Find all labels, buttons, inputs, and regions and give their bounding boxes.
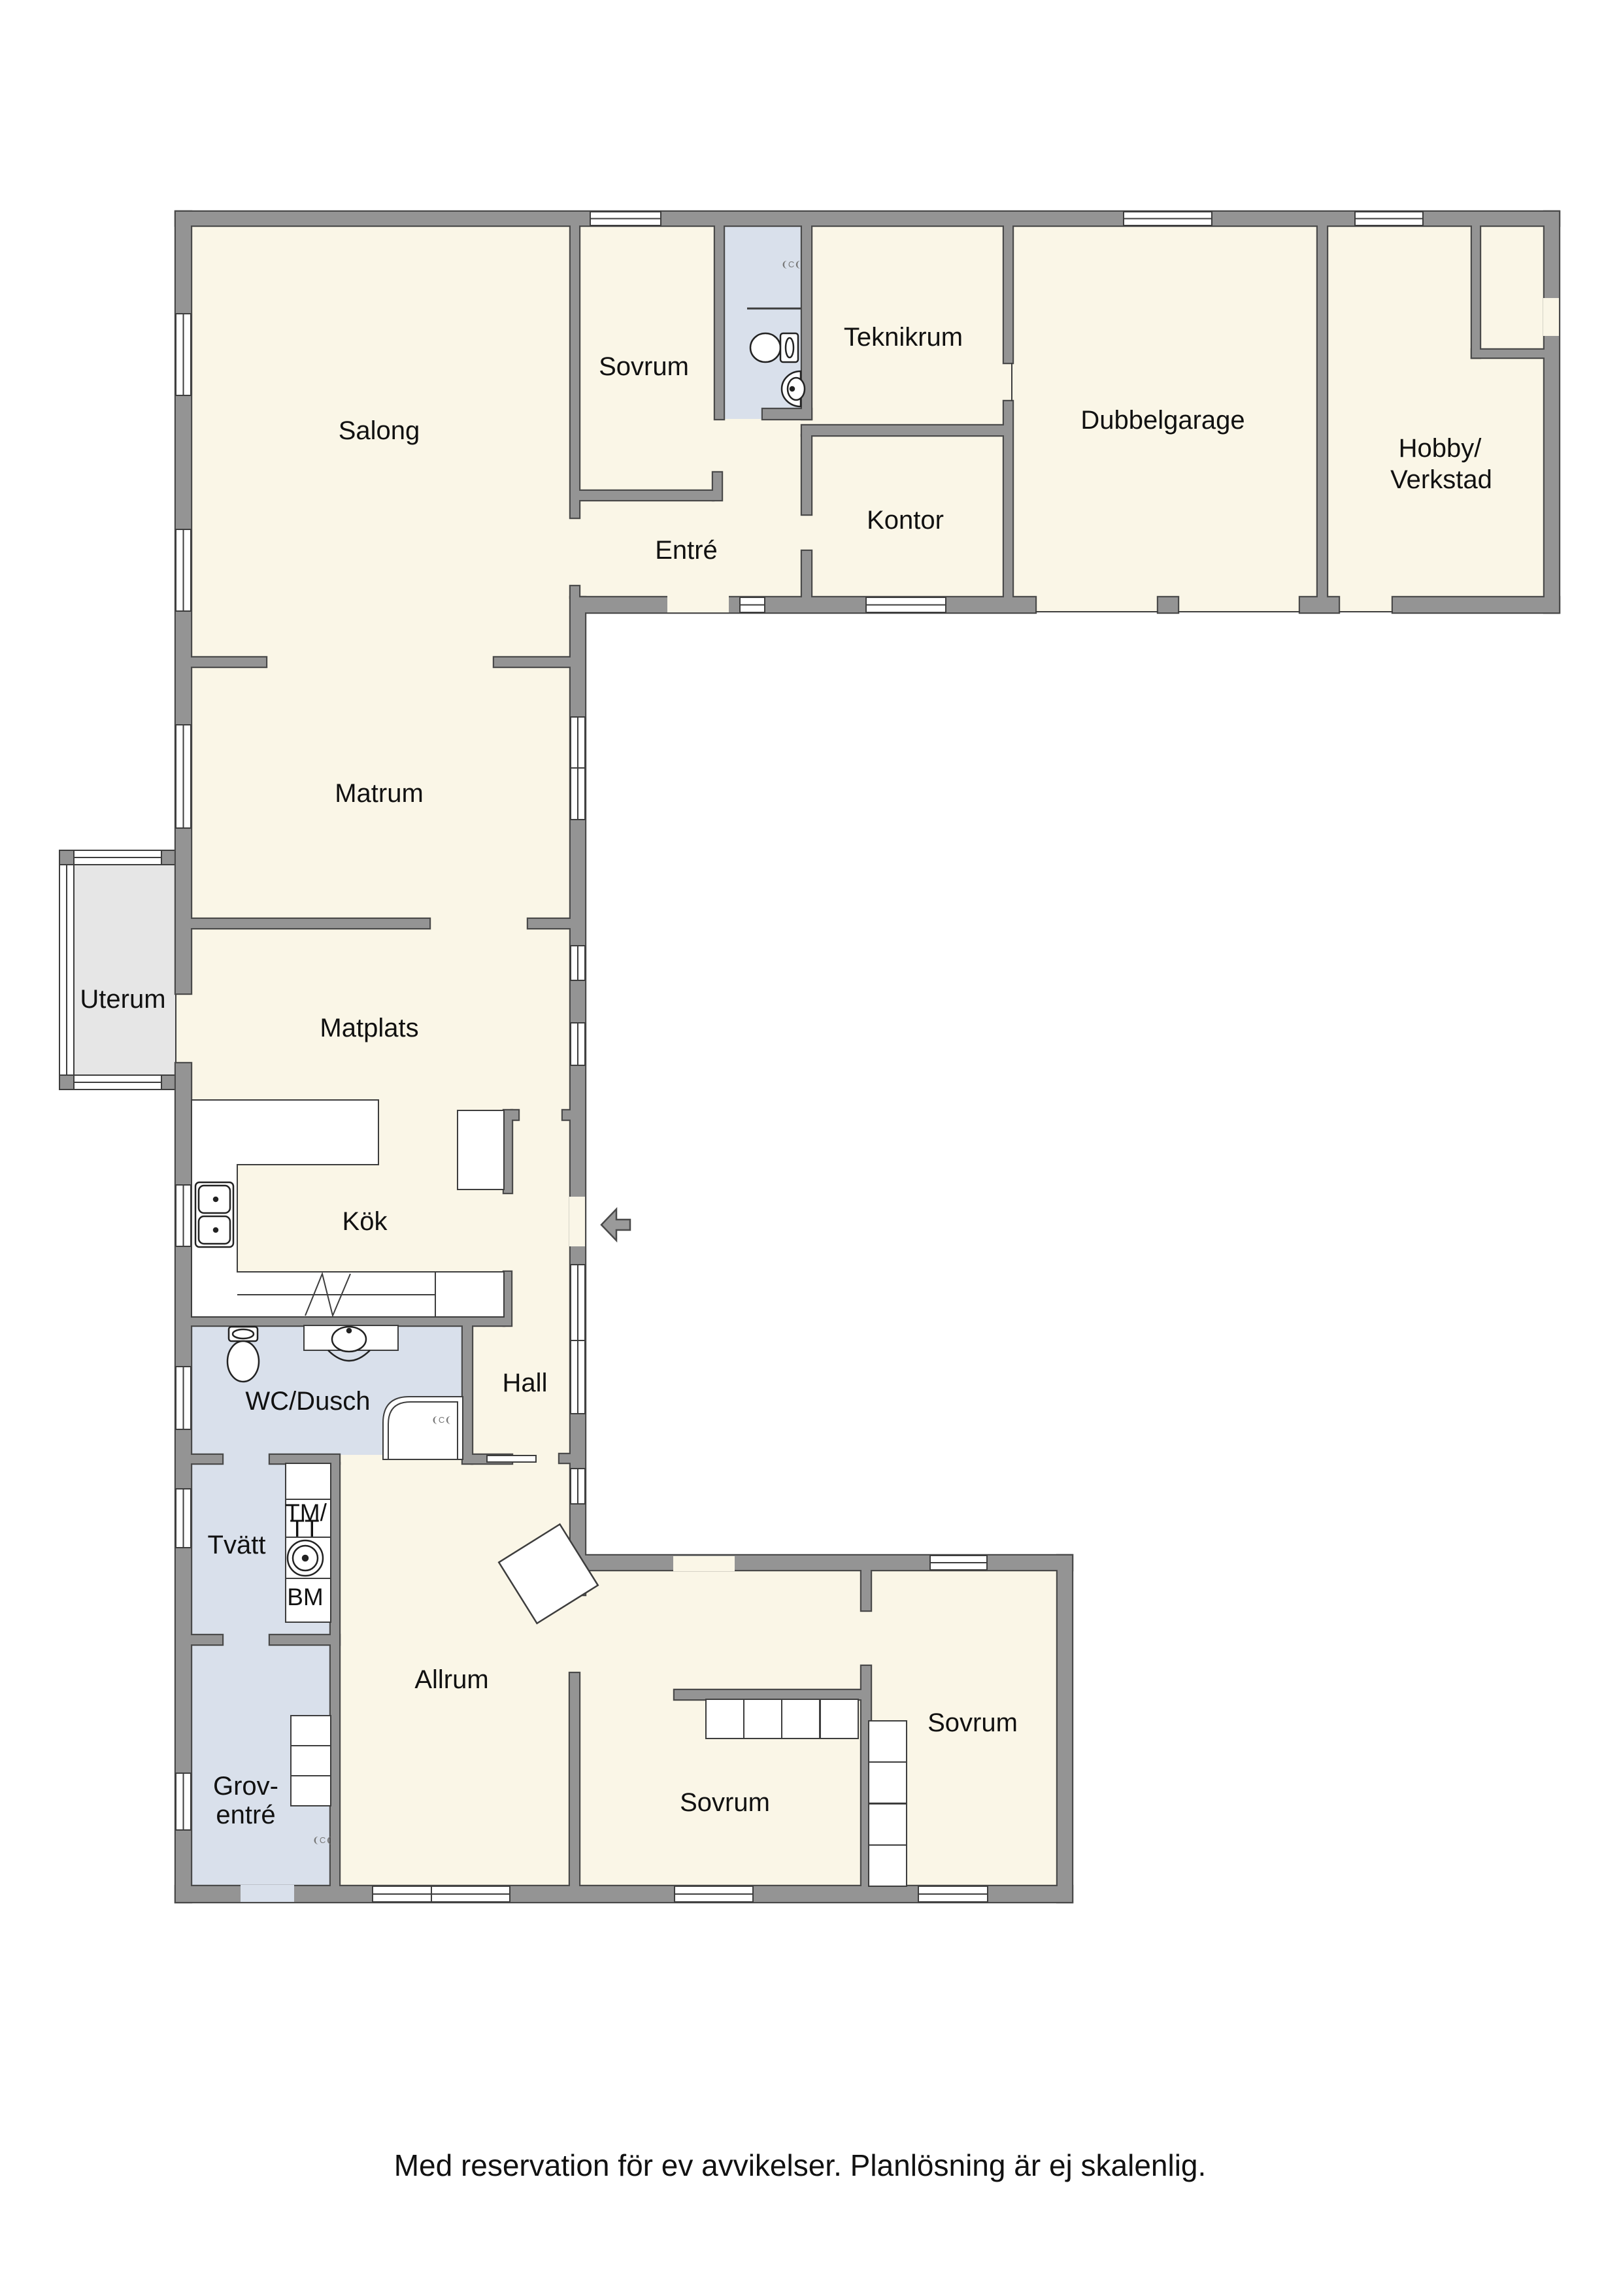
svg-text:Matplats: Matplats [320,1014,418,1042]
svg-text:Hobby/: Hobby/ [1399,434,1482,463]
svg-text:Grov-: Grov- [213,1772,278,1801]
svg-text:Sovrum: Sovrum [680,1788,770,1817]
svg-text:BM: BM [287,1584,324,1610]
svg-text:Matrum: Matrum [335,779,424,808]
svg-text:TT: TT [290,1515,319,1542]
svg-text:Allrum: Allrum [414,1665,488,1694]
svg-text:WC/Dusch: WC/Dusch [245,1387,370,1416]
svg-text:❨C❨: ❨C❨ [781,259,801,269]
svg-text:Salong: Salong [339,416,420,445]
svg-text:❨C❨: ❨C❨ [431,1415,452,1425]
svg-text:Verkstad: Verkstad [1390,465,1492,494]
svg-text:Sovrum: Sovrum [599,352,689,381]
svg-text:entré: entré [216,1801,275,1829]
svg-text:Entré: Entré [655,536,718,565]
svg-text:Tvätt: Tvätt [208,1531,266,1559]
svg-text:Kök: Kök [343,1207,388,1236]
svg-text:❨C❨: ❨C❨ [312,1835,333,1845]
svg-text:Hall: Hall [503,1369,548,1397]
svg-text:Sovrum: Sovrum [927,1708,1018,1737]
svg-text:Teknikrum: Teknikrum [844,323,963,352]
svg-text:Kontor: Kontor [867,506,944,535]
svg-text:Dubbelgarage: Dubbelgarage [1080,406,1245,435]
svg-text:Med reservation för ev avvikel: Med reservation för ev avvikelser. Planl… [394,2148,1207,2182]
svg-text:Uterum: Uterum [80,985,165,1014]
